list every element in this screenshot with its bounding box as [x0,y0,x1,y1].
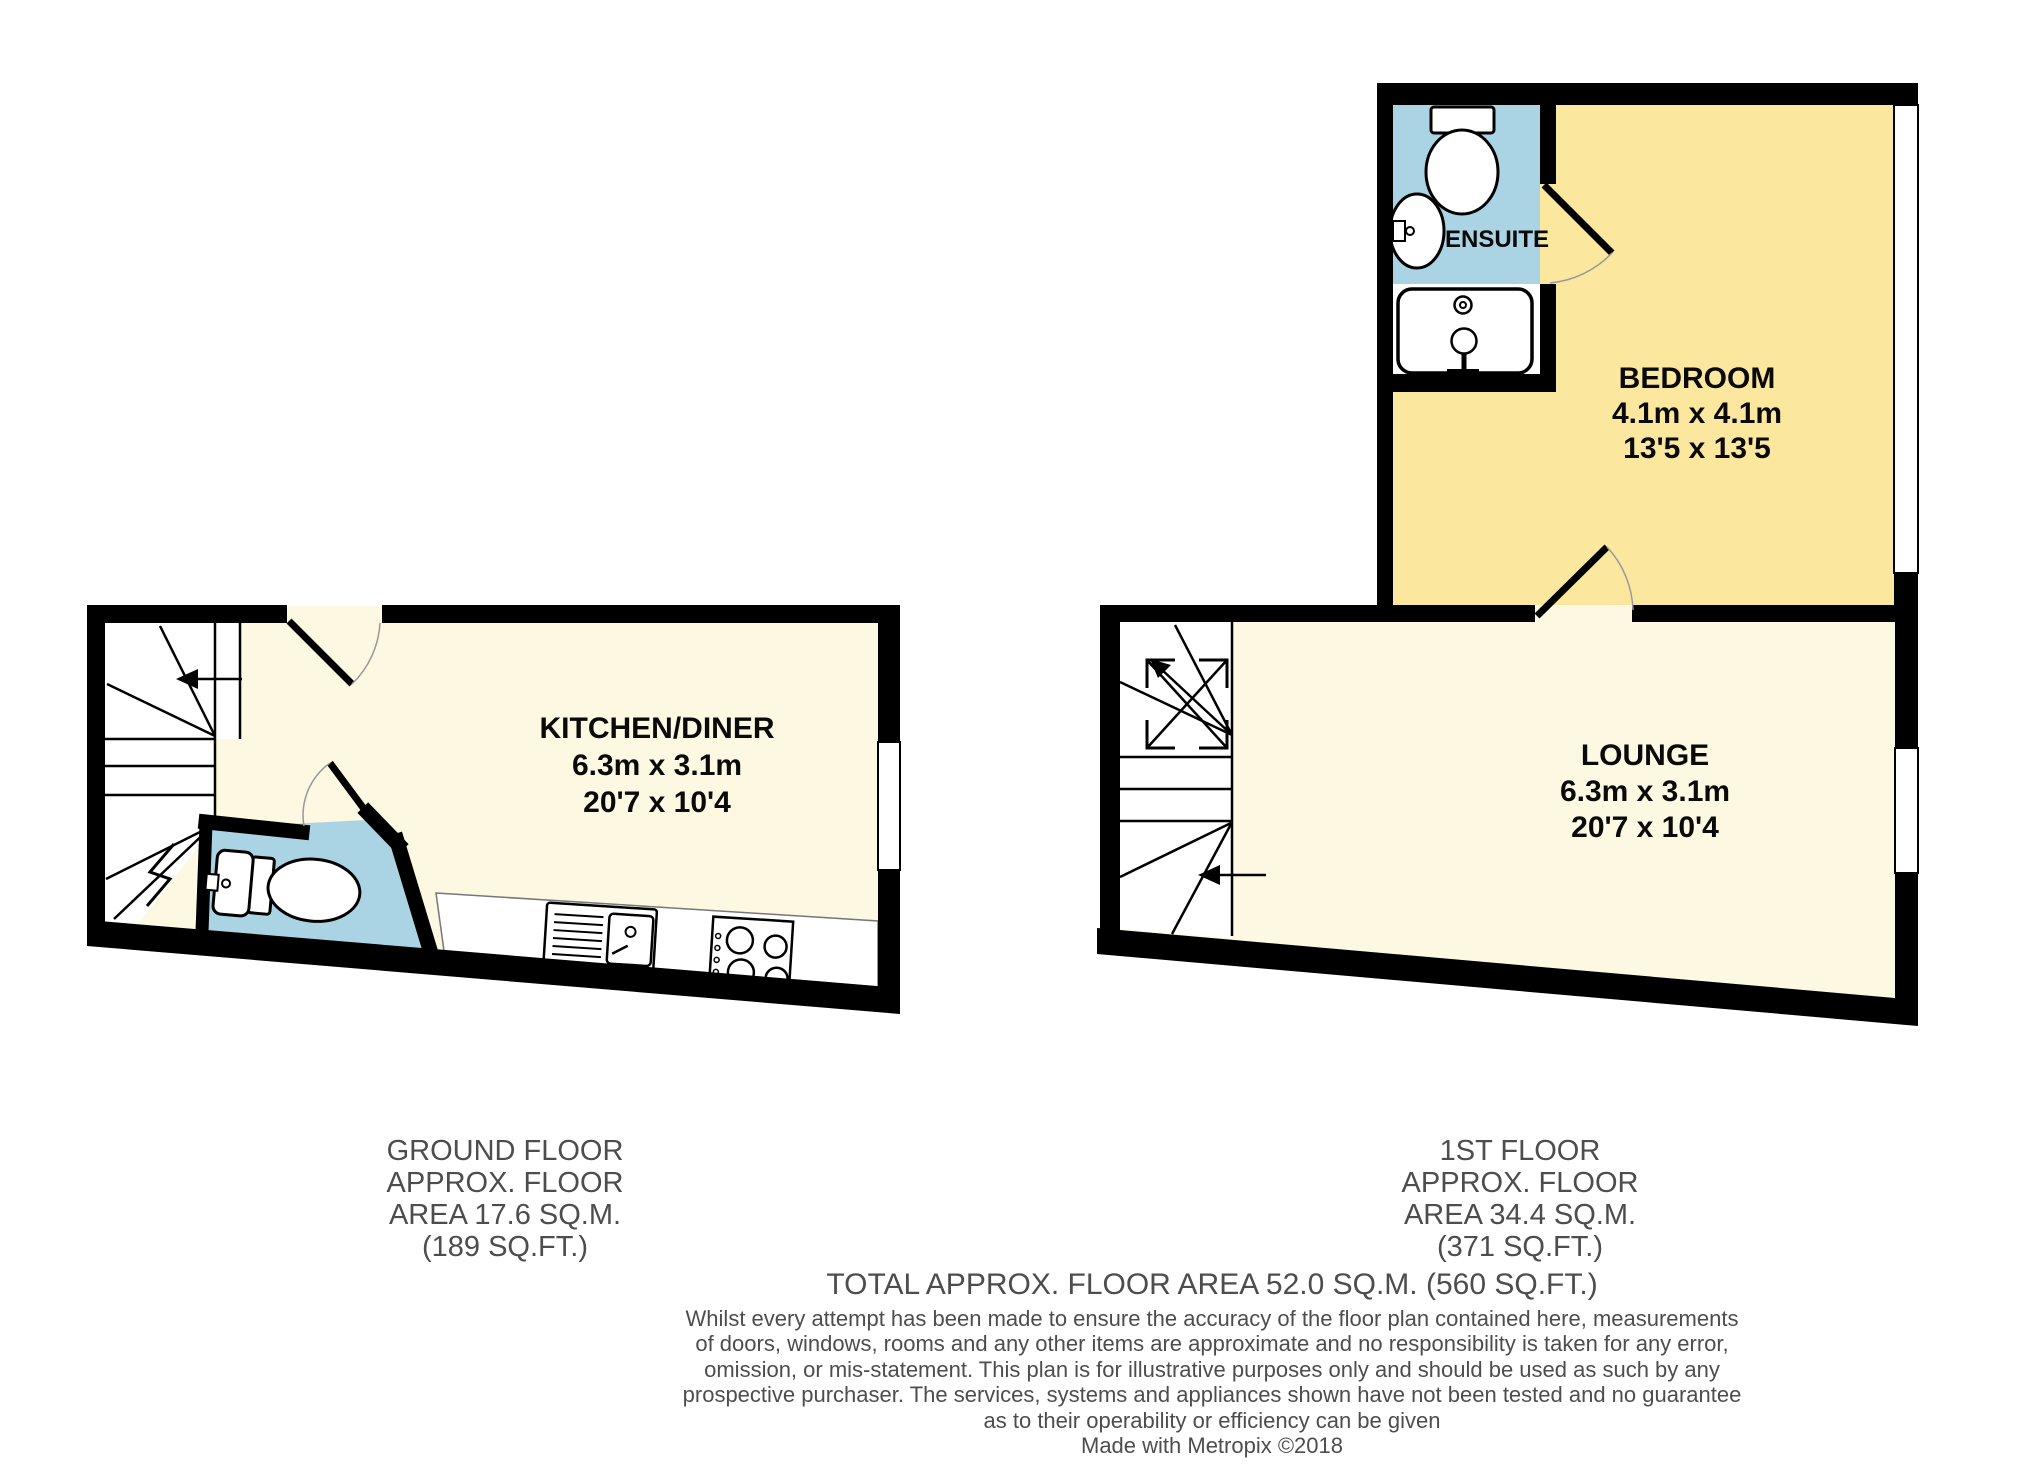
caption-line: (371 SQ.FT.) [1402,1231,1639,1263]
kitchen-label: KITCHEN/DINER [539,712,774,746]
entry-door-gap [287,606,382,624]
disclaimer-line: of doors, windows, rooms and any other i… [683,1331,1742,1356]
total-area-text: TOTAL APPROX. FLOOR AREA 52.0 SQ.M. (560… [826,1268,1597,1302]
metropix-credit: Made with Metropix ©2018 [683,1433,1742,1458]
caption-line: AREA 34.4 SQ.M. [1402,1199,1639,1231]
lounge-size-imperial: 20'7 x 10'4 [1571,811,1719,845]
kitchen-size-imperial: 20'7 x 10'4 [583,786,731,820]
first-floor-caption: 1ST FLOOR APPROX. FLOOR AREA 34.4 SQ.M. … [1402,1135,1639,1263]
caption-line: (189 SQ.FT.) [387,1231,624,1263]
bedroom-size-imperial: 13'5 x 13'5 [1623,432,1771,466]
disclaimer-text: Whilst every attempt has been made to en… [683,1306,1742,1458]
kitchen-window [878,742,900,870]
caption-line: APPROX. FLOOR [1402,1167,1639,1199]
floorplan-page: KITCHEN/DINER 6.3m x 3.1m 20'7 x 10'4 BE… [0,0,2025,1476]
lounge-size-metric: 6.3m x 3.1m [1560,775,1730,809]
ground-floor-plan [87,605,900,1014]
ensuite-toilet-icon [1426,107,1498,214]
disclaimer-line: as to their operability or efficiency ca… [683,1408,1742,1433]
bedroom-label: BEDROOM [1619,362,1776,396]
kitchen-size-metric: 6.3m x 3.1m [572,749,742,783]
lounge-window [1895,748,1918,873]
floorplan-drawing [0,0,2025,1476]
caption-line: AREA 17.6 SQ.M. [387,1199,624,1231]
shower-icon [1398,289,1532,373]
bedroom-size-metric: 4.1m x 4.1m [1612,397,1782,431]
ensuite-label: ENSUITE [1445,226,1549,254]
disclaimer-line: prospective purchaser. The services, sys… [683,1382,1742,1407]
caption-line: APPROX. FLOOR [387,1167,624,1199]
disclaimer-line: Whilst every attempt has been made to en… [683,1306,1742,1331]
caption-line: GROUND FLOOR [387,1135,624,1167]
bedroom-window [1894,105,1918,573]
lounge-label: LOUNGE [1581,739,1709,773]
caption-line: 1ST FLOOR [1402,1135,1639,1167]
disclaimer-line: omission, or mis-statement. This plan is… [683,1357,1742,1382]
first-floor-plan [1097,83,1918,1026]
ensuite-basin-icon [1390,194,1444,268]
ground-floor-caption: GROUND FLOOR APPROX. FLOOR AREA 17.6 SQ.… [387,1135,624,1263]
